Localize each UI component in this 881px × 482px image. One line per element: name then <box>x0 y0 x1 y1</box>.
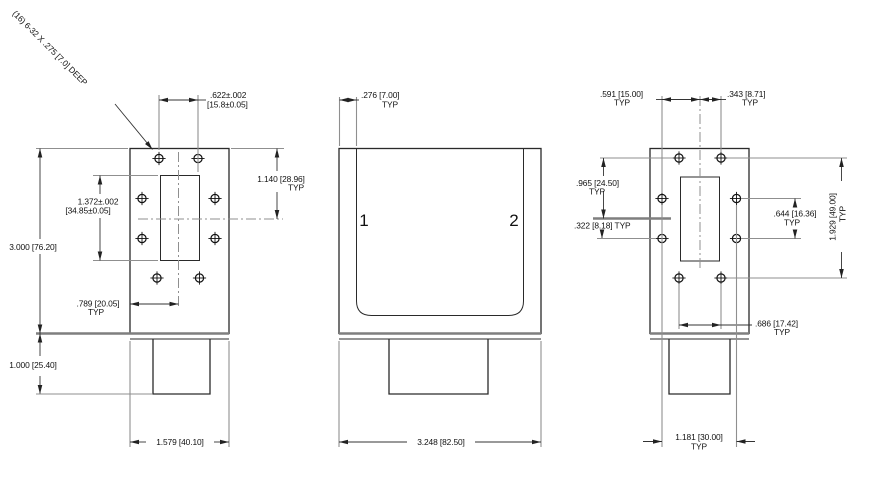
typ-label: TYP <box>774 327 791 337</box>
dim-center-to-lower-hole: .322 [8.18] TYP <box>574 221 631 231</box>
typ-label: TYP <box>742 98 759 108</box>
front-connector-outline <box>389 339 488 394</box>
screw-hole <box>135 232 148 245</box>
dim-hole-spacing-top-mm: [15.8±0.05] <box>207 100 248 110</box>
screw-hole <box>135 192 148 205</box>
screw-hole <box>152 152 165 165</box>
left-view: (16) 6-32 X .275 [7.0] DEEP .622±.002 [1… <box>9 8 305 447</box>
left-connector-outline <box>153 339 210 394</box>
screw-hole <box>672 151 685 164</box>
screw-hole <box>208 232 221 245</box>
port-1-label: 1 <box>359 211 368 230</box>
port-2-label: 2 <box>509 211 518 230</box>
dim-front-width: 3.248 [82.50] <box>417 437 465 447</box>
middle-view: 1 2 .276 [7.00] TYP 3.248 [82.50] <box>339 90 541 447</box>
dim-pocket-height-mm: [34.85±0.05] <box>65 206 110 216</box>
dim-connector-height: 1.000 [25.40] <box>9 360 57 370</box>
dim-body-height: 3.000 [76.20] <box>9 242 57 252</box>
dim-wall-thickness: .276 [7.00] <box>361 90 399 100</box>
screw-hole <box>208 192 221 205</box>
screw-hole <box>193 271 206 284</box>
screw-hole <box>150 271 163 284</box>
dim-mid-hole-width: 1.181 [30.00] <box>675 432 723 442</box>
right-view: .591 [15.00] TYP .343 [8.71] TYP .965 [2… <box>574 89 848 452</box>
dim-body-width: 1.579 [40.10] <box>156 437 204 447</box>
engineering-drawing-canvas: (16) 6-32 X .275 [7.0] DEEP .622±.002 [1… <box>0 0 881 482</box>
dim-hole-spacing-top-in: .622±.002 <box>210 90 247 100</box>
front-inner-wall-outline <box>357 149 524 316</box>
tapped-hole-callout: (16) 6-32 X .275 [7.0] DEEP <box>11 8 90 87</box>
screw-hole <box>714 271 727 284</box>
typ-label: TYP <box>838 205 848 222</box>
screw-hole <box>714 151 727 164</box>
dim-hole-span-vertical: 1.929 [49.00] <box>828 193 838 241</box>
typ-label: TYP <box>382 100 399 110</box>
left-pocket-outline <box>161 176 200 261</box>
typ-label: TYP <box>614 98 631 108</box>
typ-label: TYP <box>288 183 305 193</box>
typ-label: TYP <box>88 307 105 317</box>
typ-label: TYP <box>589 187 606 197</box>
screw-hole <box>655 192 668 205</box>
screw-hole <box>672 271 685 284</box>
three-view-drawing: (16) 6-32 X .275 [7.0] DEEP .622±.002 [1… <box>0 0 881 482</box>
front-body-outline <box>339 149 541 334</box>
callout-leader-line <box>115 104 153 150</box>
typ-label: TYP <box>691 442 708 452</box>
typ-label: TYP <box>784 218 801 228</box>
right-connector-outline <box>669 339 730 394</box>
